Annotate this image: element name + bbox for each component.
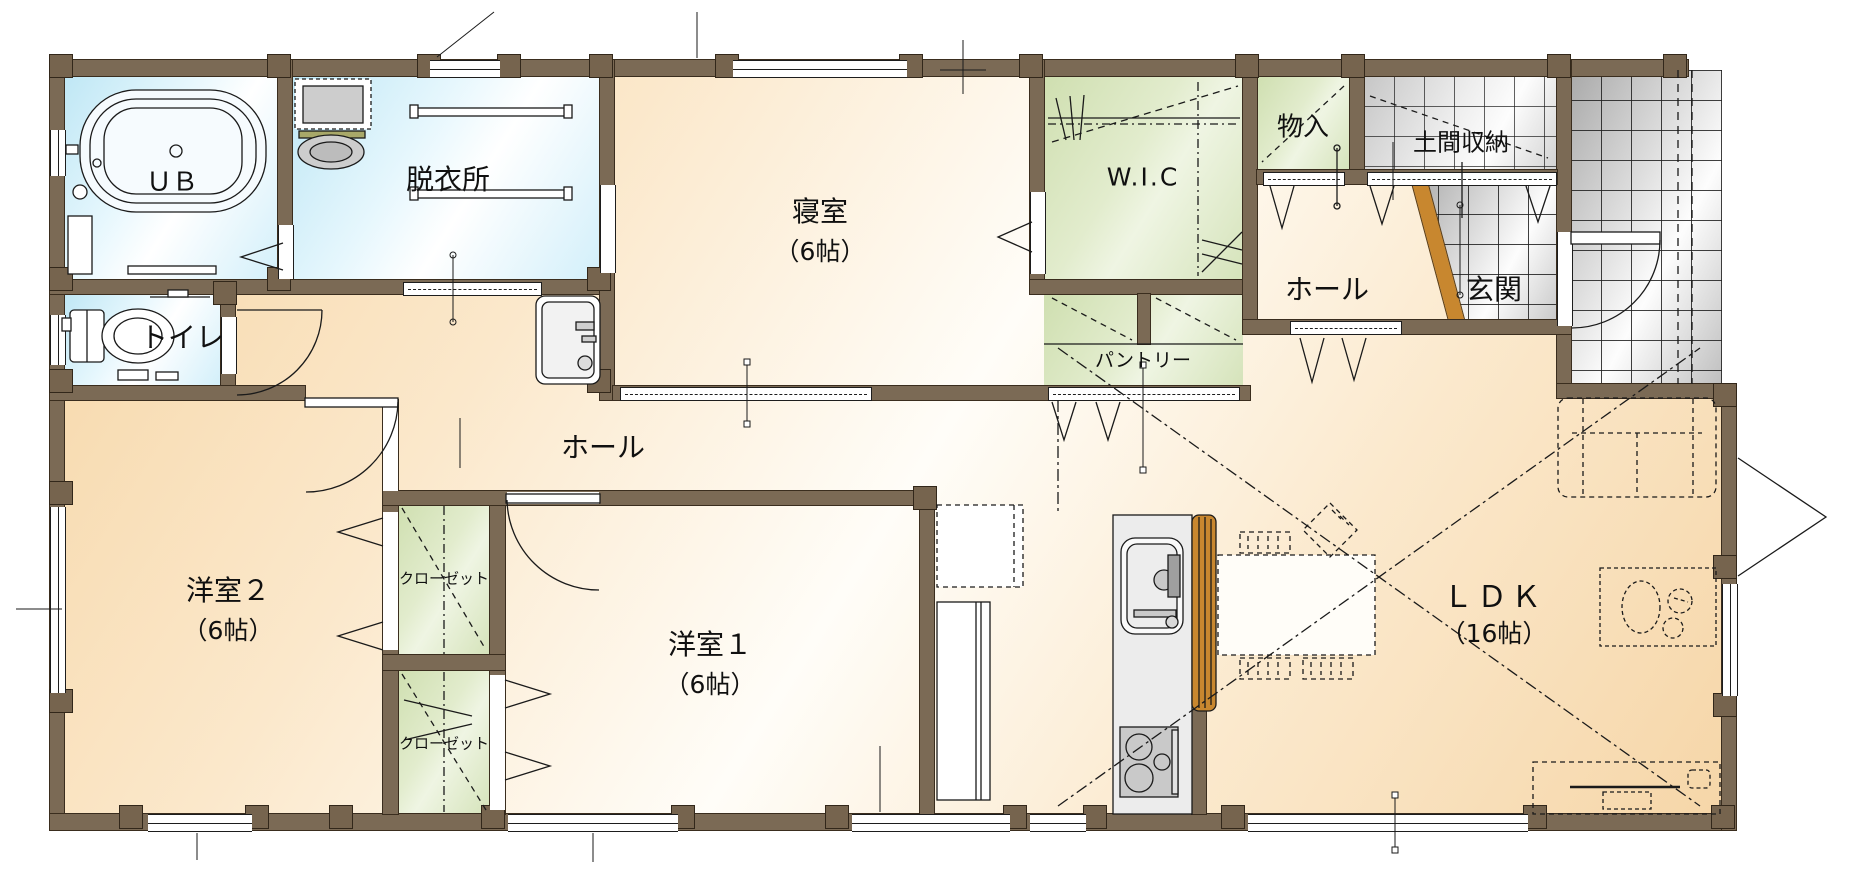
refrigerator bbox=[937, 505, 1023, 587]
tv-board bbox=[1533, 762, 1720, 814]
floor-plan: ＵＢ 脱衣所 トイレ 寝室 （6帖） W.I.C 物入 土間収納 ホール 玄関 … bbox=[0, 0, 1874, 875]
room-label-hall-upper: ホール bbox=[1285, 268, 1369, 308]
folding-door-marks bbox=[241, 222, 1032, 780]
kitchen-sink bbox=[1121, 538, 1183, 634]
room-label-west1: 洋室１ bbox=[668, 623, 752, 663]
door-v-marks bbox=[1052, 186, 1550, 440]
room-label-wic: W.I.C bbox=[1107, 163, 1180, 192]
washbasin bbox=[536, 296, 600, 384]
cupboard bbox=[937, 602, 990, 800]
porch-step-lines bbox=[1678, 70, 1692, 384]
pantry-shelf-lines bbox=[1044, 298, 1243, 344]
room-label-storage: 物入 bbox=[1277, 107, 1329, 144]
room-size-west1: （6帖） bbox=[665, 665, 756, 701]
room-label-closet1: クローゼット bbox=[399, 568, 489, 589]
room-size-ldk: （16帖） bbox=[1441, 614, 1548, 650]
gas-stove bbox=[1120, 727, 1178, 797]
washing-machine bbox=[295, 79, 371, 169]
room-label-hall-lower: ホール bbox=[561, 426, 645, 466]
room-label-closet2: クローゼット bbox=[399, 733, 489, 754]
sofa bbox=[1558, 398, 1716, 497]
room-label-doma: 土間収納 bbox=[1413, 123, 1509, 158]
room-label-toilet: トイレ bbox=[140, 316, 224, 356]
room-label-pantry: パントリー bbox=[1095, 346, 1191, 373]
room-label-bedroom: 寝室 bbox=[792, 190, 848, 230]
room-size-bedroom: （6帖） bbox=[775, 232, 866, 268]
storage-diagonal bbox=[1262, 86, 1344, 209]
dining-table bbox=[1218, 503, 1375, 679]
closet-diagonals bbox=[402, 506, 486, 812]
room-label-ub: ＵＢ bbox=[146, 162, 198, 199]
bay-marker bbox=[1738, 458, 1826, 576]
room-label-west2: 洋室２ bbox=[186, 569, 270, 609]
room-size-west2: （6帖） bbox=[183, 611, 274, 647]
room-label-ldk: ＬＤＫ bbox=[1443, 572, 1545, 616]
room-label-genkan: 玄関 bbox=[1466, 268, 1522, 308]
coffee-table bbox=[1600, 568, 1716, 646]
fixture-overlay bbox=[0, 0, 1874, 875]
room-label-dressing: 脱衣所 bbox=[406, 158, 490, 198]
